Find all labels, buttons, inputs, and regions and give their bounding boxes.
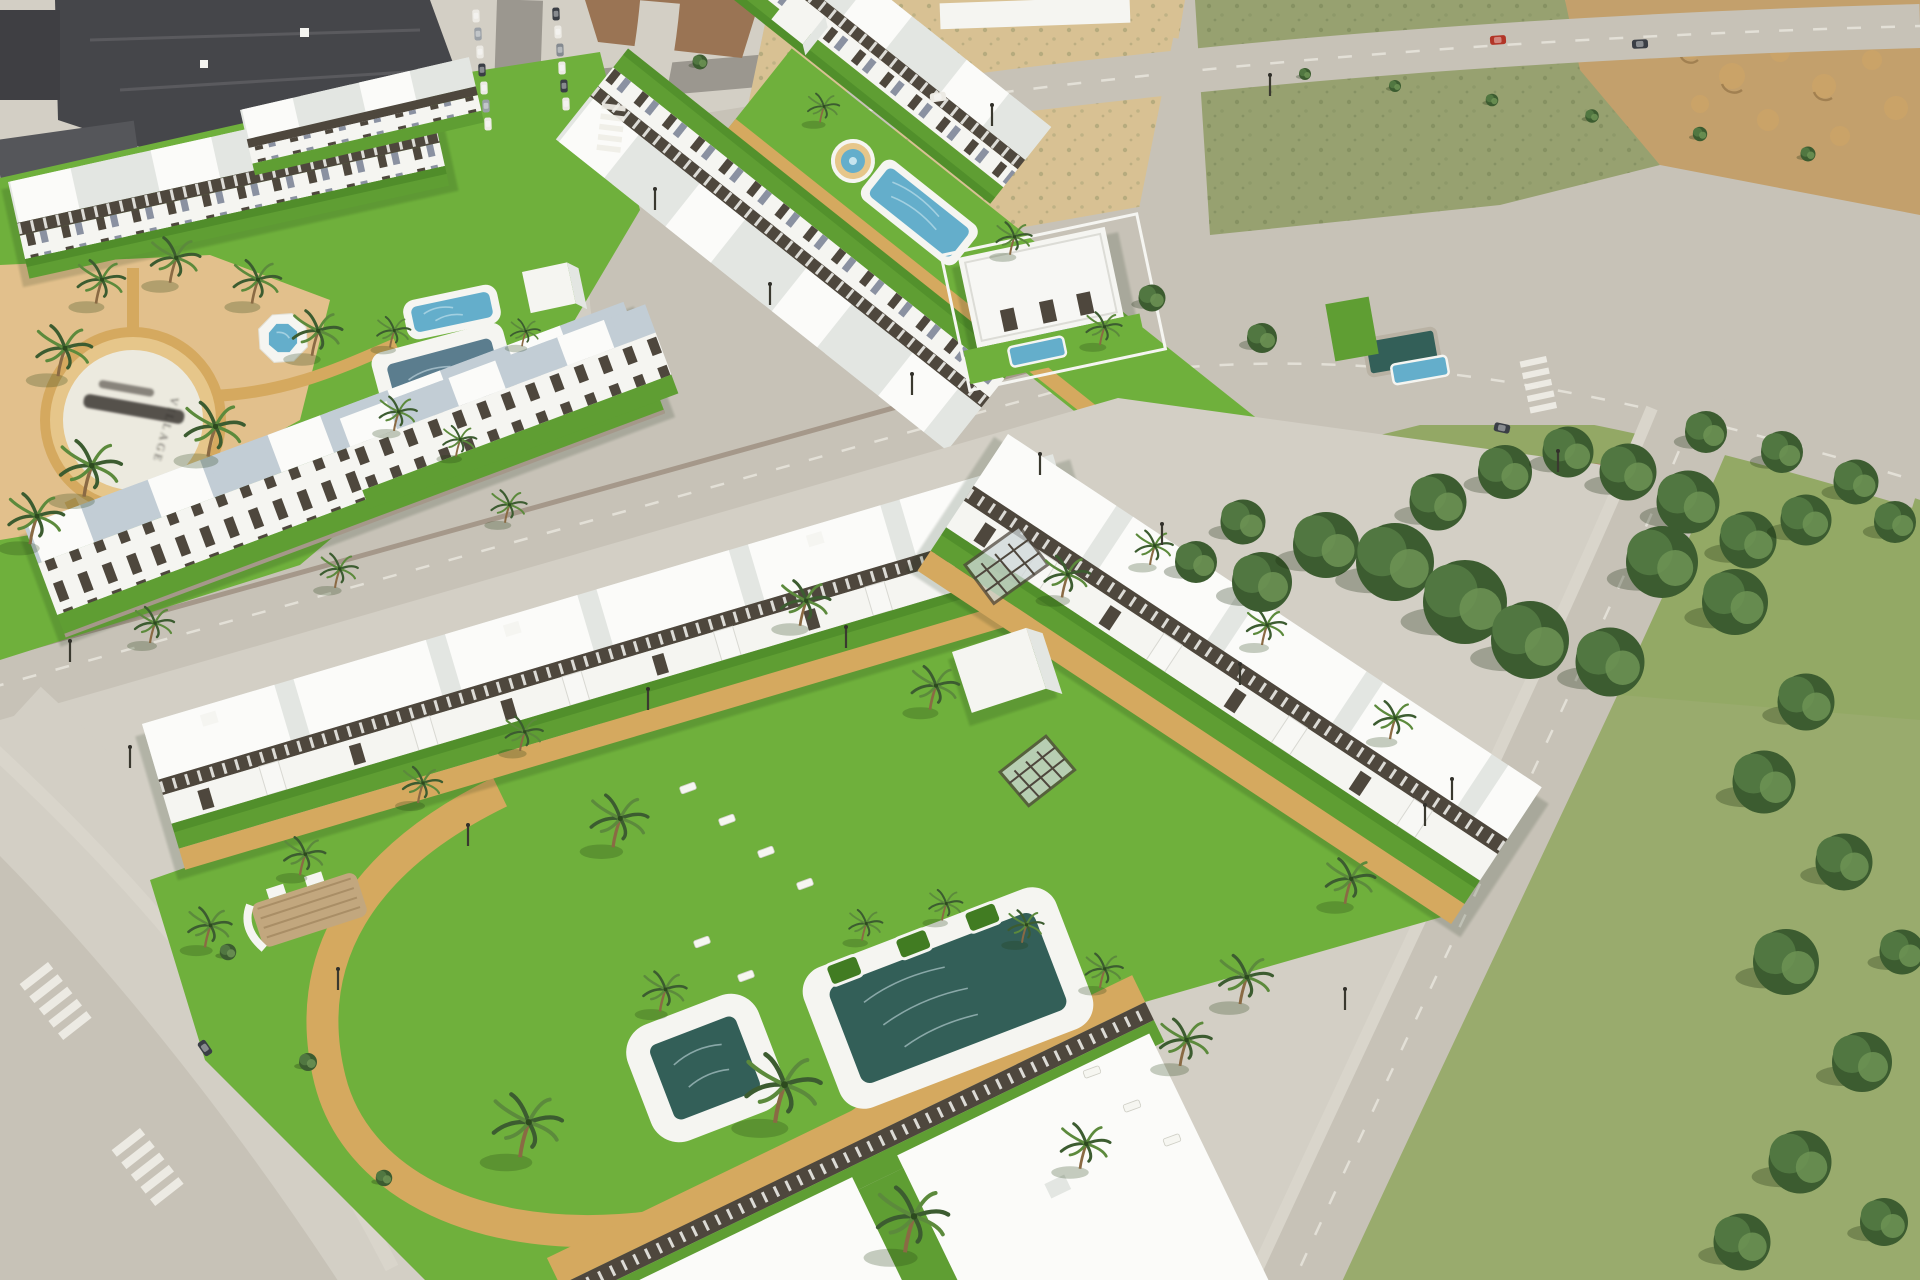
car [478, 63, 486, 76]
red-car [1490, 35, 1507, 45]
car [558, 61, 566, 74]
car [562, 97, 570, 110]
car [560, 79, 568, 92]
aerial-development-render: VILLAGE [0, 0, 1920, 1280]
car [556, 43, 564, 56]
car [1632, 39, 1648, 49]
car [552, 7, 560, 20]
car [484, 117, 492, 130]
car [476, 45, 484, 58]
car [480, 81, 488, 94]
town-roof [0, 10, 60, 100]
car [472, 9, 480, 22]
car [554, 25, 562, 38]
car [474, 27, 482, 40]
car [482, 99, 490, 112]
